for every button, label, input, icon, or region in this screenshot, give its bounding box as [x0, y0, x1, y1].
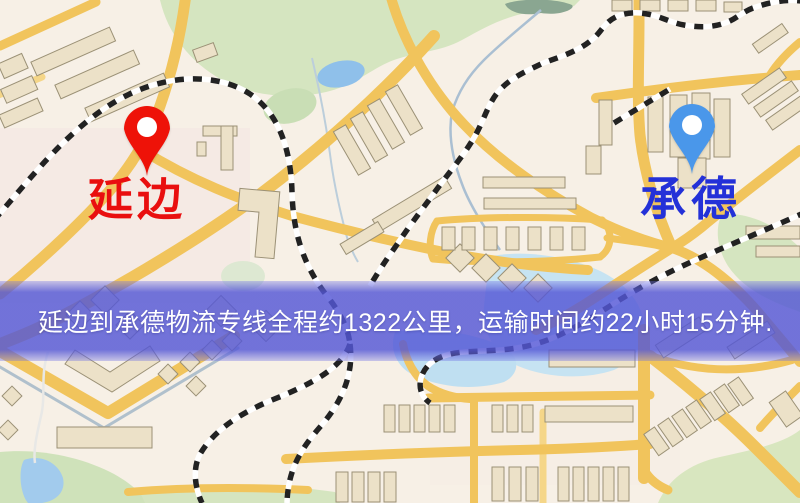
origin-pin-icon[interactable]: [115, 100, 179, 178]
origin-label: 延边: [88, 178, 186, 223]
route-info-text: 延边到承德物流专线全程约1322公里，运输时间约22小时15分钟.: [38, 303, 773, 339]
logistics-route-map-screenshot: 延边 承德 延边到承德物流专线全程约1322公里，运输时间约22小时15分钟.: [0, 0, 800, 503]
destination-pin-icon[interactable]: [660, 98, 724, 176]
map-canvas[interactable]: [0, 0, 800, 503]
destination-label: 承德: [640, 177, 742, 223]
route-info-banner: 延边到承德物流专线全程约1322公里，运输时间约22小时15分钟.: [0, 281, 800, 361]
